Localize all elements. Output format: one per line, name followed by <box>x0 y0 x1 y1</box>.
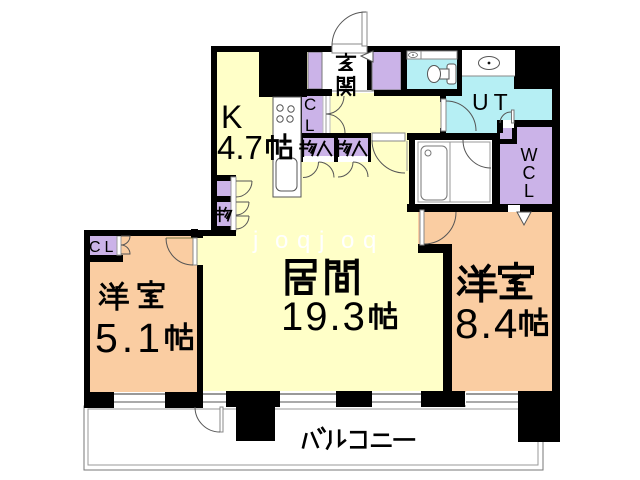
svg-text:L: L <box>305 116 314 135</box>
svg-text:o: o <box>341 227 354 254</box>
svg-text:5.1: 5.1 <box>95 315 164 361</box>
svg-text:C: C <box>523 163 536 183</box>
svg-text:CL: CL <box>89 239 117 256</box>
svg-text:j: j <box>252 227 258 254</box>
svg-text:4.7: 4.7 <box>217 129 263 166</box>
svg-text:C: C <box>304 95 316 114</box>
svg-text:UT: UT <box>472 89 513 115</box>
svg-text:19.3: 19.3 <box>281 295 367 339</box>
svg-text:q: q <box>363 227 376 254</box>
svg-text:L: L <box>524 181 534 201</box>
svg-text:W: W <box>521 145 538 165</box>
svg-text:o: o <box>275 227 288 254</box>
svg-text:q: q <box>297 227 310 254</box>
svg-text:8.4: 8.4 <box>455 300 519 347</box>
svg-text:j: j <box>318 227 324 254</box>
